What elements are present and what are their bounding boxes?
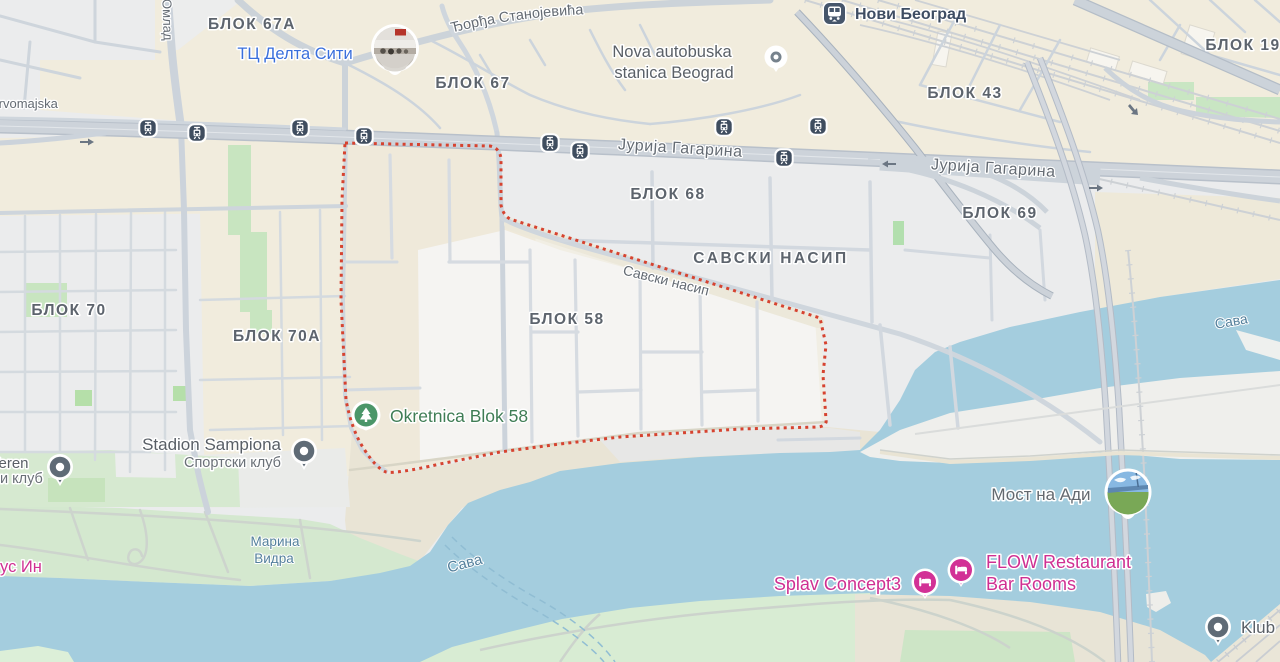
svg-text:Нови Београд: Нови Београд [855, 6, 966, 23]
svg-text:САВСКИ НАСИП: САВСКИ НАСИП [693, 250, 848, 267]
svg-text:Омлад: Омлад [159, 0, 175, 41]
svg-text:БЛОК 70: БЛОК 70 [31, 302, 106, 319]
svg-text:ус Ин: ус Ин [0, 558, 42, 576]
svg-text:Bar Rooms: Bar Rooms [986, 574, 1076, 594]
svg-text:Splav Concept3: Splav Concept3 [774, 574, 901, 594]
svg-text:БЛОК 68: БЛОК 68 [630, 186, 705, 203]
svg-text:БЛОК 67: БЛОК 67 [435, 75, 510, 92]
svg-text:Мост на Ади: Мост на Ади [991, 485, 1090, 504]
svg-text:Спортски клуб: Спортски клуб [184, 455, 281, 471]
svg-text:Stadion Sampiona: Stadion Sampiona [142, 435, 281, 454]
svg-text:Видра: Видра [254, 551, 294, 566]
svg-text:stanica Beograd: stanica Beograd [614, 64, 733, 82]
svg-text:Klub: Klub [1241, 618, 1275, 637]
svg-text:и клуб: и клуб [0, 471, 43, 487]
svg-text:БЛОК 69: БЛОК 69 [962, 205, 1037, 222]
svg-text:Teren: Teren [0, 455, 29, 472]
svg-text:Prvomajska: Prvomajska [0, 96, 59, 111]
svg-text:БЛОК 67А: БЛОК 67А [208, 16, 296, 33]
svg-text:FLOW Restaurant: FLOW Restaurant [986, 552, 1131, 572]
svg-text:БЛОК 58: БЛОК 58 [529, 311, 604, 328]
svg-text:БЛОК 19: БЛОК 19 [1205, 37, 1280, 54]
svg-text:БЛОК 43: БЛОК 43 [927, 85, 1002, 102]
svg-text:ТЦ Делта Сити: ТЦ Делта Сити [237, 45, 352, 63]
svg-text:Марина: Марина [251, 534, 300, 549]
svg-text:Okretnica Blok 58: Okretnica Blok 58 [390, 406, 528, 426]
svg-text:БЛОК 70А: БЛОК 70А [233, 328, 321, 345]
svg-text:Nova autobuska: Nova autobuska [612, 43, 732, 61]
